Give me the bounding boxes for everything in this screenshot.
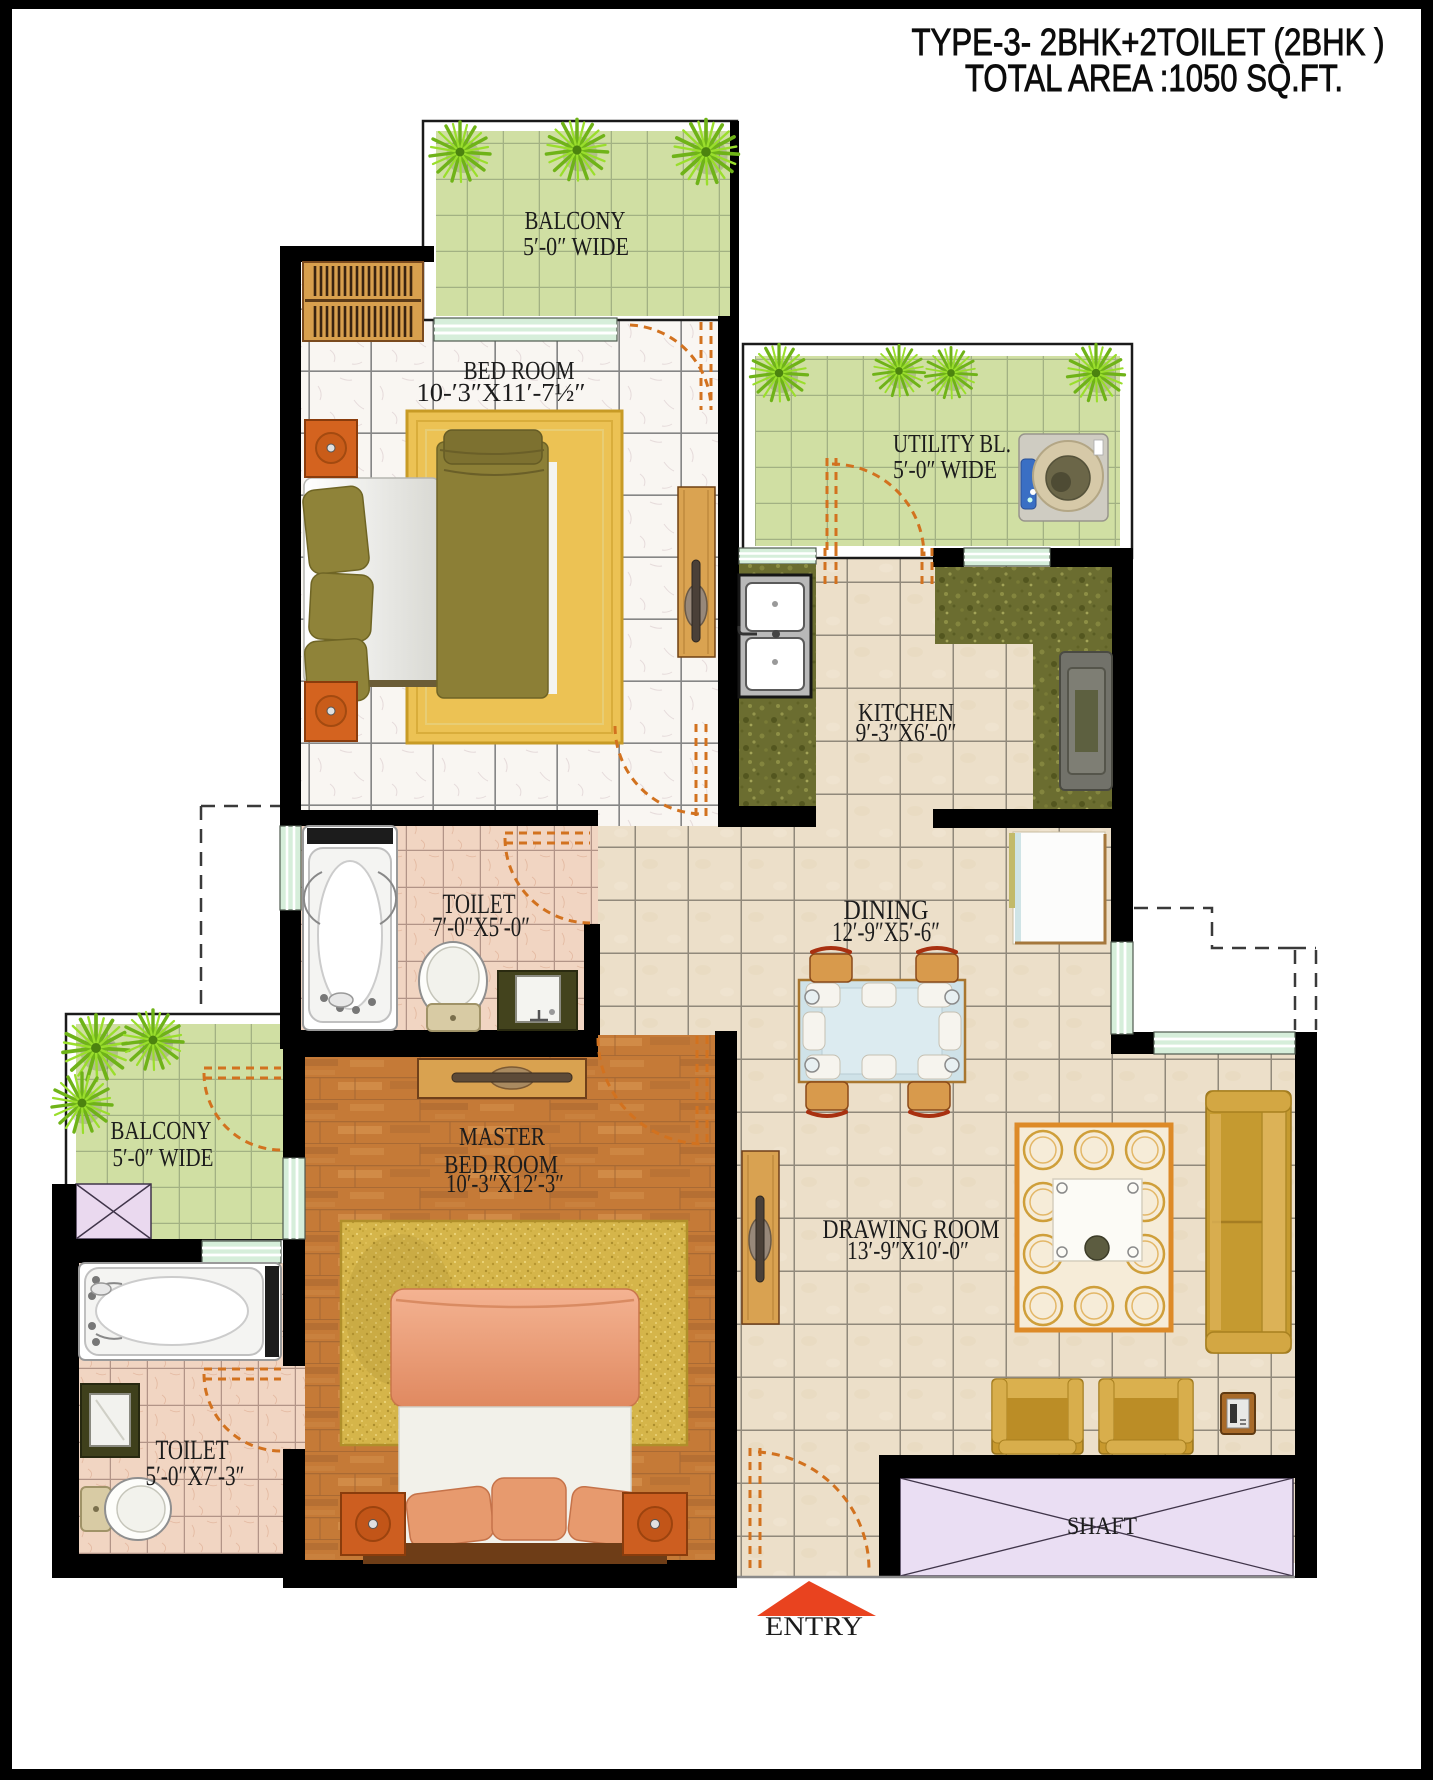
- svg-text:ENTRY: ENTRY: [765, 1611, 863, 1641]
- svg-text:MASTER: MASTER: [459, 1122, 546, 1151]
- svg-text:5′-0″X7′-3″: 5′-0″X7′-3″: [146, 1461, 245, 1492]
- svg-text:TOTAL AREA :1050 SQ.FT.: TOTAL AREA :1050 SQ.FT.: [965, 58, 1343, 100]
- svg-text:UTILITY BL.: UTILITY BL.: [893, 429, 1011, 458]
- svg-text:5′-0″ WIDE: 5′-0″ WIDE: [523, 232, 629, 261]
- svg-text:12′-9″X5′-6″: 12′-9″X5′-6″: [832, 917, 940, 948]
- svg-text:5′-0″ WIDE: 5′-0″ WIDE: [893, 455, 997, 484]
- svg-text:10′-3″X12′-3″: 10′-3″X12′-3″: [446, 1169, 564, 1198]
- svg-text:9′-3″X6′-0″: 9′-3″X6′-0″: [856, 718, 957, 747]
- svg-text:BALCONY: BALCONY: [525, 206, 626, 235]
- svg-text:10-′3″X11′-7½″: 10-′3″X11′-7½″: [417, 378, 586, 407]
- svg-text:SHAFT: SHAFT: [1067, 1513, 1137, 1540]
- svg-text:BALCONY: BALCONY: [111, 1116, 212, 1145]
- svg-text:13′-9″X10′-0″: 13′-9″X10′-0″: [847, 1236, 969, 1265]
- svg-text:7′-0″X5′-0″: 7′-0″X5′-0″: [432, 912, 530, 943]
- svg-text:5′-0″ WIDE: 5′-0″ WIDE: [113, 1143, 214, 1172]
